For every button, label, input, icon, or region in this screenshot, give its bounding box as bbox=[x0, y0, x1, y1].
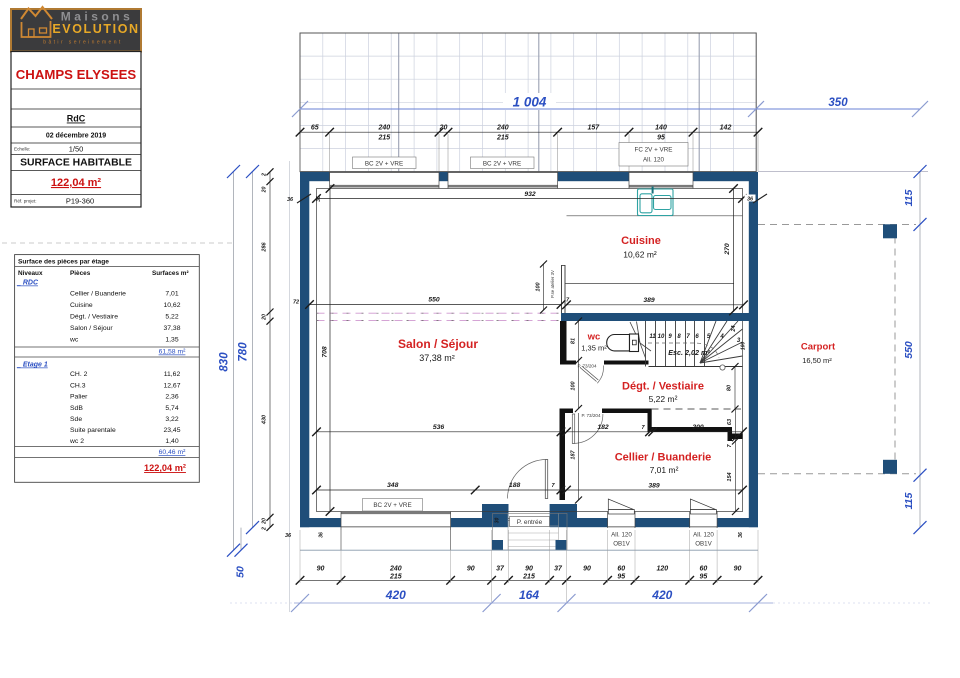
svg-text:All. 120: All. 120 bbox=[693, 532, 714, 539]
svg-text:122,04 m²: 122,04 m² bbox=[51, 177, 101, 189]
svg-text:RdC: RdC bbox=[67, 114, 86, 124]
svg-text:154: 154 bbox=[727, 472, 733, 481]
svg-text:36: 36 bbox=[747, 196, 754, 202]
svg-text:37,38: 37,38 bbox=[163, 325, 180, 332]
svg-text:10,62: 10,62 bbox=[163, 302, 180, 309]
svg-text:188: 188 bbox=[509, 482, 521, 489]
svg-text:90: 90 bbox=[583, 566, 591, 573]
svg-text:02 décembre 2019: 02 décembre 2019 bbox=[46, 133, 106, 140]
svg-text:37: 37 bbox=[496, 566, 505, 573]
svg-text:P19-360: P19-360 bbox=[66, 197, 94, 206]
svg-text:430: 430 bbox=[262, 415, 268, 425]
svg-text:P. 73/204: P. 73/204 bbox=[577, 363, 597, 368]
svg-text:24: 24 bbox=[731, 325, 737, 332]
svg-text:200: 200 bbox=[691, 424, 704, 431]
svg-text:215: 215 bbox=[496, 135, 509, 142]
svg-text:100: 100 bbox=[536, 282, 542, 291]
svg-text:5,22 m²: 5,22 m² bbox=[649, 394, 678, 404]
svg-text:Carport: Carport bbox=[801, 342, 836, 353]
svg-text:BC 2V + VRE: BC 2V + VRE bbox=[483, 160, 521, 167]
svg-text:20: 20 bbox=[262, 314, 268, 321]
svg-text:FC 2V + VRE: FC 2V + VRE bbox=[635, 147, 673, 154]
svg-text:215: 215 bbox=[522, 574, 535, 581]
svg-text:1,35: 1,35 bbox=[165, 337, 178, 344]
svg-text:2,36: 2,36 bbox=[165, 394, 178, 401]
svg-text:Cellier / Buanderie: Cellier / Buanderie bbox=[70, 291, 126, 298]
svg-text:142: 142 bbox=[720, 125, 732, 132]
svg-text:P. 73/204: P. 73/204 bbox=[581, 413, 601, 418]
svg-text:36: 36 bbox=[319, 532, 325, 538]
svg-text:2: 2 bbox=[262, 173, 268, 177]
svg-text:2: 2 bbox=[262, 527, 268, 531]
svg-text:CH.3: CH.3 bbox=[70, 383, 86, 390]
svg-text:61,58 m²: 61,58 m² bbox=[159, 349, 187, 356]
svg-text:4: 4 bbox=[719, 334, 724, 340]
svg-text:350: 350 bbox=[828, 97, 848, 109]
svg-text:36: 36 bbox=[738, 532, 744, 538]
svg-text:23,45: 23,45 bbox=[163, 427, 180, 434]
svg-text:60,46 m²: 60,46 m² bbox=[159, 449, 187, 456]
svg-text:50: 50 bbox=[235, 566, 247, 578]
svg-text:3,22: 3,22 bbox=[165, 416, 178, 423]
svg-text:10: 10 bbox=[658, 334, 665, 340]
svg-text:Surface des pièces par étage: Surface des pièces par étage bbox=[18, 259, 109, 266]
svg-text:Echelle:: Echelle: bbox=[14, 147, 30, 152]
svg-text:1/50: 1/50 bbox=[69, 145, 84, 154]
svg-text:270: 270 bbox=[724, 243, 731, 256]
svg-text:215: 215 bbox=[389, 574, 402, 581]
svg-text:7,01 m²: 7,01 m² bbox=[650, 465, 679, 475]
svg-text:115: 115 bbox=[903, 492, 915, 509]
svg-text:All. 120: All. 120 bbox=[611, 532, 632, 539]
svg-text:BC 2V + VRE: BC 2V + VRE bbox=[373, 502, 411, 509]
svg-text:240: 240 bbox=[377, 125, 390, 132]
svg-text:37: 37 bbox=[554, 566, 563, 573]
svg-text:932: 932 bbox=[524, 191, 536, 198]
svg-text:90: 90 bbox=[317, 566, 325, 573]
svg-text:Pièces: Pièces bbox=[70, 270, 91, 277]
svg-text:90: 90 bbox=[734, 566, 742, 573]
svg-text:157: 157 bbox=[587, 125, 600, 132]
svg-text:100: 100 bbox=[571, 381, 577, 390]
svg-text:Réf. projet:: Réf. projet: bbox=[14, 199, 36, 204]
svg-text:389: 389 bbox=[643, 297, 655, 304]
svg-text:81: 81 bbox=[571, 338, 577, 344]
svg-text:Dégt. / Vestiaire: Dégt. / Vestiaire bbox=[70, 314, 118, 321]
svg-text:CHAMPS ELYSEES: CHAMPS ELYSEES bbox=[16, 67, 137, 82]
svg-text:Cuisine: Cuisine bbox=[621, 235, 661, 247]
svg-text:780: 780 bbox=[238, 342, 250, 362]
svg-text:Niveaux: Niveaux bbox=[18, 270, 43, 277]
svg-text:240: 240 bbox=[496, 125, 509, 132]
svg-text:95: 95 bbox=[617, 574, 625, 581]
svg-text:P. entrée: P. entrée bbox=[517, 519, 543, 526]
svg-text:_ RDC: _ RDC bbox=[16, 280, 39, 287]
svg-text:60: 60 bbox=[617, 566, 625, 573]
svg-text:7,01: 7,01 bbox=[165, 291, 178, 298]
svg-text:37,38 m²: 37,38 m² bbox=[419, 353, 455, 363]
svg-text:Sde: Sde bbox=[70, 416, 82, 423]
svg-text:wc 2: wc 2 bbox=[69, 438, 84, 445]
svg-text:Cuisine: Cuisine bbox=[70, 302, 93, 309]
svg-text:OB1V: OB1V bbox=[695, 541, 712, 548]
svg-text:182: 182 bbox=[597, 424, 609, 431]
svg-text:wc: wc bbox=[587, 332, 601, 343]
svg-text:164: 164 bbox=[519, 588, 539, 602]
svg-text:12,67: 12,67 bbox=[163, 383, 180, 390]
svg-text:1 004: 1 004 bbox=[513, 95, 547, 110]
svg-text:P.se atelier 3V: P.se atelier 3V bbox=[550, 270, 555, 298]
svg-text:Esc. 2,02 m²: Esc. 2,02 m² bbox=[668, 348, 710, 357]
svg-text:SURFACE HABITABLE: SURFACE HABITABLE bbox=[20, 158, 132, 169]
svg-text:90: 90 bbox=[467, 566, 475, 573]
svg-text:550: 550 bbox=[903, 341, 915, 359]
svg-text:65: 65 bbox=[311, 125, 319, 132]
svg-text:60: 60 bbox=[700, 566, 708, 573]
svg-text:Palier: Palier bbox=[70, 394, 88, 401]
svg-text:_ Etage 1: _ Etage 1 bbox=[16, 362, 48, 369]
svg-text:90: 90 bbox=[525, 566, 533, 573]
svg-text:420: 420 bbox=[385, 588, 406, 602]
svg-text:11,62: 11,62 bbox=[164, 371, 181, 378]
svg-text:5,74: 5,74 bbox=[165, 405, 178, 412]
svg-text:bâtir sereinement: bâtir sereinement bbox=[43, 40, 122, 46]
svg-text:550: 550 bbox=[428, 297, 440, 304]
svg-text:187: 187 bbox=[571, 449, 577, 459]
svg-text:140: 140 bbox=[655, 125, 667, 132]
svg-text:Cellier / Buanderie: Cellier / Buanderie bbox=[615, 452, 712, 464]
svg-text:36: 36 bbox=[287, 197, 294, 203]
svg-text:5,22: 5,22 bbox=[165, 314, 178, 321]
svg-text:420: 420 bbox=[651, 588, 672, 602]
svg-text:All. 120: All. 120 bbox=[643, 157, 665, 164]
svg-text:122,04 m²: 122,04 m² bbox=[144, 463, 186, 473]
svg-text:115: 115 bbox=[903, 189, 915, 206]
svg-text:1,35 m²: 1,35 m² bbox=[581, 344, 607, 353]
svg-text:11: 11 bbox=[649, 334, 656, 340]
svg-text:80: 80 bbox=[727, 385, 733, 391]
svg-text:SdB: SdB bbox=[70, 405, 83, 412]
svg-text:20: 20 bbox=[439, 125, 448, 132]
svg-text:10,62 m²: 10,62 m² bbox=[623, 250, 657, 260]
svg-text:536: 536 bbox=[433, 424, 445, 431]
svg-text:36: 36 bbox=[316, 196, 322, 202]
svg-text:286: 286 bbox=[262, 241, 268, 252]
svg-text:20: 20 bbox=[262, 518, 268, 525]
svg-text:120: 120 bbox=[656, 566, 668, 573]
svg-text:240: 240 bbox=[389, 566, 402, 573]
svg-text:348: 348 bbox=[387, 482, 399, 489]
svg-text:Salon / Séjour: Salon / Séjour bbox=[398, 337, 478, 351]
svg-text:Surfaces m²: Surfaces m² bbox=[152, 270, 189, 277]
svg-text:CH. 2: CH. 2 bbox=[70, 371, 88, 378]
svg-text:EVOLUTION: EVOLUTION bbox=[52, 22, 139, 36]
svg-text:Dégt. / Vestiaire: Dégt. / Vestiaire bbox=[622, 381, 704, 393]
svg-text:100: 100 bbox=[741, 342, 747, 351]
svg-text:Suite parentale: Suite parentale bbox=[70, 427, 116, 434]
svg-text:95: 95 bbox=[700, 574, 708, 581]
svg-text:1,40: 1,40 bbox=[165, 438, 178, 445]
svg-text:708: 708 bbox=[322, 346, 329, 358]
svg-text:215: 215 bbox=[377, 135, 390, 142]
svg-text:BC 2V + VRE: BC 2V + VRE bbox=[365, 160, 403, 167]
svg-text:63: 63 bbox=[727, 419, 733, 425]
svg-text:30: 30 bbox=[495, 518, 501, 524]
svg-text:Salon / Séjour: Salon / Séjour bbox=[70, 325, 113, 332]
svg-text:72: 72 bbox=[293, 300, 299, 306]
svg-text:wc: wc bbox=[69, 337, 79, 344]
svg-text:16,50 m²: 16,50 m² bbox=[802, 356, 832, 365]
svg-text:OB1V: OB1V bbox=[613, 541, 630, 548]
svg-text:830: 830 bbox=[219, 352, 231, 372]
svg-text:20: 20 bbox=[262, 187, 268, 194]
svg-text:389: 389 bbox=[648, 483, 660, 490]
svg-text:36: 36 bbox=[285, 533, 292, 539]
svg-text:95: 95 bbox=[657, 135, 665, 142]
